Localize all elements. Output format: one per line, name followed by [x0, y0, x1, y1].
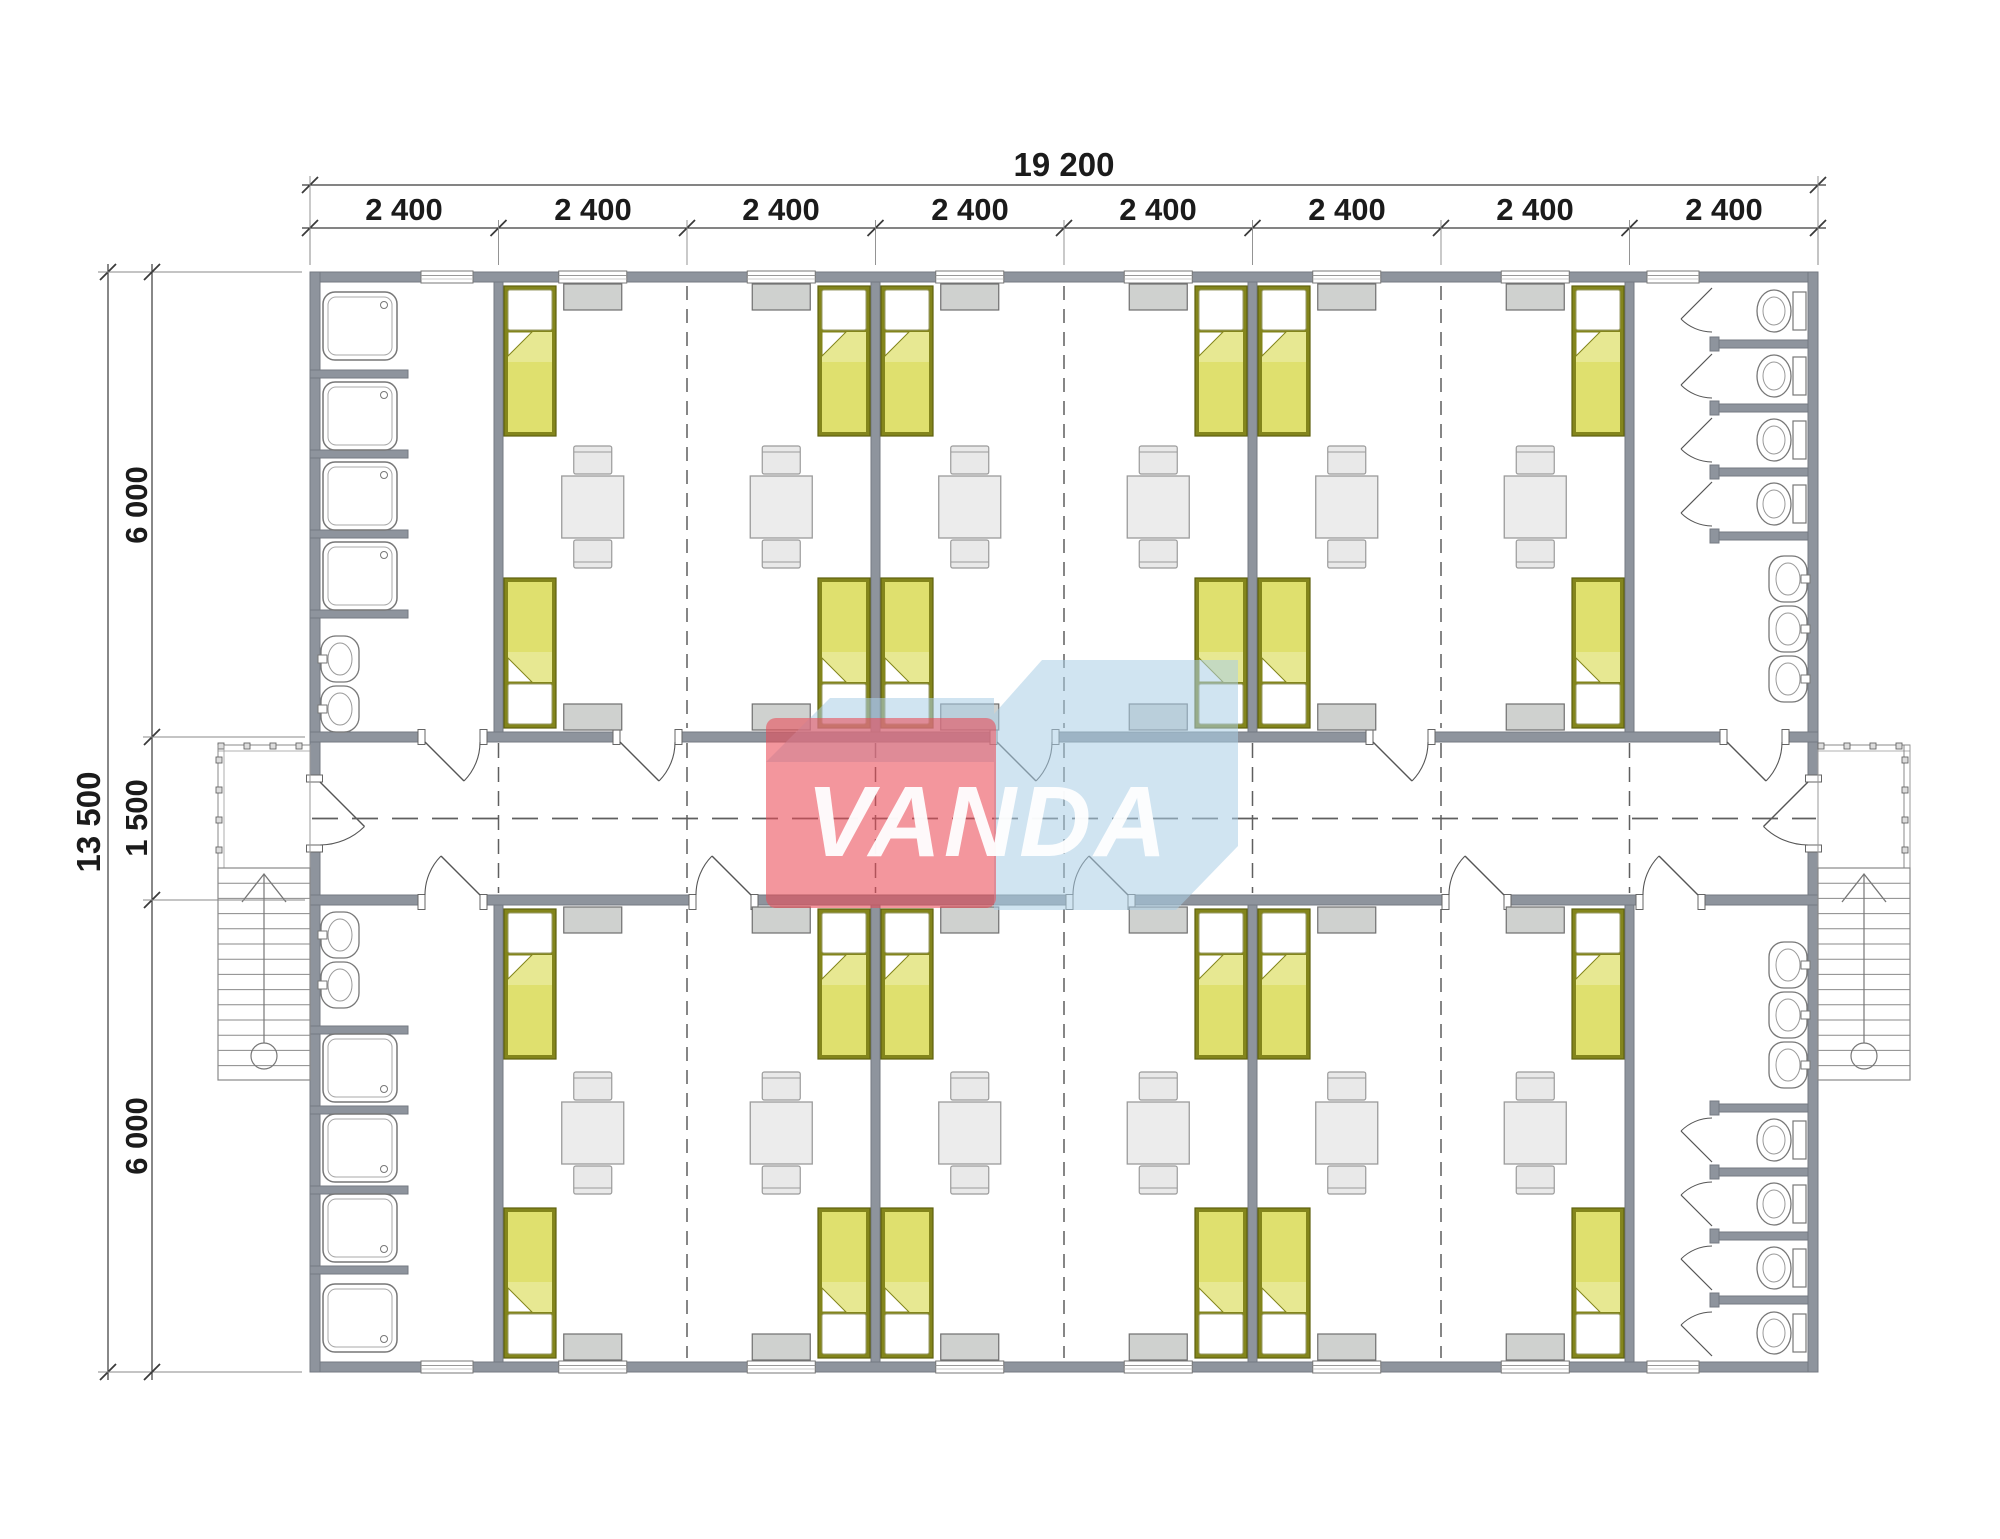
chair [951, 540, 989, 568]
sink-bowl [1776, 613, 1800, 645]
bed-pillow [1576, 913, 1620, 953]
table [939, 476, 1001, 538]
railing-post [216, 847, 222, 853]
landing [1818, 745, 1910, 868]
door-jamb [1782, 730, 1789, 745]
window [559, 271, 627, 283]
door-opening [425, 894, 480, 906]
toilet-bowl-inner [1763, 1190, 1785, 1218]
sink-faucet [1801, 575, 1810, 583]
wardrobe [1506, 704, 1564, 730]
sink-faucet [318, 655, 327, 663]
wall-room-divider [871, 905, 880, 1362]
wall-wc-stall [1714, 340, 1808, 348]
bed-pillow [822, 290, 866, 330]
chair [574, 1166, 612, 1194]
bed-pillow [1576, 684, 1620, 724]
table [1504, 1102, 1566, 1164]
chair [1139, 1166, 1177, 1194]
chair [762, 1166, 800, 1194]
shower-drain [381, 472, 388, 479]
wall-shower-stall [310, 370, 408, 378]
wall-wc-jamb [1710, 1101, 1719, 1115]
wall-room-divider [494, 282, 503, 732]
wall-wc-stall [1714, 1104, 1808, 1112]
wall-room-divider [1625, 282, 1634, 732]
bed-pillow [1262, 290, 1306, 330]
door-jamb [689, 895, 696, 910]
railing-post [1896, 743, 1902, 749]
shower-drain [381, 302, 388, 309]
window [747, 1361, 815, 1373]
toilet-bowl-inner [1763, 1254, 1785, 1282]
table [562, 476, 624, 538]
bed-pillow [508, 290, 552, 330]
toilet-tank [1793, 1314, 1806, 1352]
wardrobe [564, 284, 622, 310]
sink-faucet [1801, 625, 1810, 633]
door-jamb [1698, 895, 1705, 910]
door-jamb [1806, 845, 1822, 852]
bed-pillow [1199, 290, 1243, 330]
bed-pillow [1199, 1314, 1243, 1354]
wall-wc-jamb [1710, 401, 1719, 415]
bed-pillow [1262, 684, 1306, 724]
window [936, 271, 1004, 283]
railing-post [1902, 787, 1908, 793]
door-jamb [307, 845, 323, 852]
dim-module-3: 2 400 [742, 192, 820, 227]
table [1127, 1102, 1189, 1164]
railing-post [1902, 757, 1908, 763]
bed-pillow [1576, 1314, 1620, 1354]
shower-drain [381, 1246, 388, 1253]
chair [574, 540, 612, 568]
bed-pillow [508, 1314, 552, 1354]
door-jamb [307, 775, 323, 782]
door-jamb [675, 730, 682, 745]
door-opening [1643, 894, 1698, 906]
sink-bowl [1776, 949, 1800, 981]
wall-wc-jamb [1710, 1165, 1719, 1179]
wardrobe [1506, 907, 1564, 933]
railing-post [1844, 743, 1850, 749]
sink-bowl [328, 919, 352, 951]
table [1127, 476, 1189, 538]
dim-module-1: 2 400 [365, 192, 443, 227]
railing-post [216, 817, 222, 823]
drawing-canvas: VANDA 19 200 2 400 2 400 2 400 2 400 2 4… [0, 0, 2000, 1539]
wall-wc-stall [1714, 1232, 1808, 1240]
wardrobe [1129, 284, 1187, 310]
sink-bowl [328, 643, 352, 675]
sink-bowl [1776, 999, 1800, 1031]
dim-total-depth: 13 500 [70, 772, 107, 873]
chair [1328, 540, 1366, 568]
dim-module-5: 2 400 [1119, 192, 1197, 227]
toilet-bowl-inner [1763, 362, 1785, 390]
chair [951, 446, 989, 474]
railing-post [296, 743, 302, 749]
wall-top [310, 272, 1818, 282]
window [559, 1361, 627, 1373]
chair [1516, 446, 1554, 474]
wall-shower-stall [310, 610, 408, 618]
chair [574, 1072, 612, 1100]
sink-bowl [1776, 1049, 1800, 1081]
window [1501, 1361, 1569, 1373]
wardrobe [564, 907, 622, 933]
door-jamb [1806, 775, 1822, 782]
toilet-tank [1793, 1121, 1806, 1159]
chair [762, 1072, 800, 1100]
window [421, 1361, 473, 1373]
wardrobe [1318, 1334, 1376, 1360]
door-opening [696, 894, 751, 906]
wardrobe [564, 704, 622, 730]
toilet-tank [1793, 357, 1806, 395]
chair [762, 540, 800, 568]
window [1647, 1361, 1699, 1373]
railing-post [270, 743, 276, 749]
window [1124, 1361, 1192, 1373]
bed-pillow [1576, 290, 1620, 330]
wardrobe [752, 284, 810, 310]
toilet-tank [1793, 292, 1806, 330]
wall-wc-stall [1714, 532, 1808, 540]
table [939, 1102, 1001, 1164]
wall-room-divider [1248, 282, 1257, 732]
chair [1328, 1072, 1366, 1100]
chair [574, 446, 612, 474]
wall-bottom [310, 1362, 1818, 1372]
chair [1516, 1072, 1554, 1100]
wardrobe [941, 284, 999, 310]
window [1124, 271, 1192, 283]
toilet-bowl-inner [1763, 1319, 1785, 1347]
railing-post [218, 743, 224, 749]
wardrobe [752, 1334, 810, 1360]
door-jamb [480, 895, 487, 910]
toilet-bowl-inner [1763, 426, 1785, 454]
shower-drain [381, 1166, 388, 1173]
toilet-tank [1793, 421, 1806, 459]
door-opening [1373, 731, 1428, 743]
table [562, 1102, 624, 1164]
wardrobe [941, 907, 999, 933]
door-jamb [418, 730, 425, 745]
railing-post [1870, 743, 1876, 749]
wardrobe [752, 907, 810, 933]
door-jamb [1720, 730, 1727, 745]
window [1501, 271, 1569, 283]
chair [1139, 540, 1177, 568]
railing-post [1902, 847, 1908, 853]
wall-wc-jamb [1710, 1229, 1719, 1243]
door-opening [309, 782, 321, 845]
dim-depth-seg-1: 6 000 [119, 466, 154, 544]
bed-pillow [508, 913, 552, 953]
sink-bowl [1776, 563, 1800, 595]
bed-pillow [508, 684, 552, 724]
floor-plan: VANDA 19 200 2 400 2 400 2 400 2 400 2 4… [0, 0, 2000, 1539]
sink-faucet [318, 705, 327, 713]
sink-bowl [328, 969, 352, 1001]
dim-module-8: 2 400 [1685, 192, 1763, 227]
door-jamb [1428, 730, 1435, 745]
dim-module-6: 2 400 [1308, 192, 1386, 227]
bed-pillow [1262, 913, 1306, 953]
toilet-bowl-inner [1763, 297, 1785, 325]
sink-faucet [1801, 675, 1810, 683]
dim-total-width: 19 200 [1014, 146, 1115, 183]
window [1313, 1361, 1381, 1373]
toilet-tank [1793, 1249, 1806, 1287]
chair [1516, 540, 1554, 568]
shower-drain [381, 1336, 388, 1343]
wall-room-divider [494, 905, 503, 1362]
door-opening [425, 731, 480, 743]
sink-bowl [328, 693, 352, 725]
chair [1139, 1072, 1177, 1100]
toilet-bowl-inner [1763, 1126, 1785, 1154]
wall-shower-stall [310, 1266, 408, 1274]
bed-pillow [822, 913, 866, 953]
railing-post [216, 757, 222, 763]
wall-shower-stall [310, 1186, 408, 1194]
window [421, 271, 473, 283]
sink-faucet [318, 981, 327, 989]
bed-pillow [885, 913, 929, 953]
bed-pillow [885, 1314, 929, 1354]
wall-wc-stall [1714, 1296, 1808, 1304]
table [750, 1102, 812, 1164]
wardrobe [1318, 284, 1376, 310]
bed-pillow [1262, 1314, 1306, 1354]
wardrobe [1129, 1334, 1187, 1360]
door-opening [620, 731, 675, 743]
wall-shower-stall [310, 450, 408, 458]
wall-wc-jamb [1710, 1293, 1719, 1307]
chair [1139, 446, 1177, 474]
dim-module-4: 2 400 [931, 192, 1009, 227]
dim-depth-seg-3: 6 000 [119, 1097, 154, 1175]
railing-post [1902, 817, 1908, 823]
toilet-tank [1793, 1185, 1806, 1223]
bed-pillow [822, 1314, 866, 1354]
door-jamb [1442, 895, 1449, 910]
wall-wc-stall [1714, 468, 1808, 476]
railing-post [244, 743, 250, 749]
chair [1328, 446, 1366, 474]
shower-drain [381, 392, 388, 399]
door-jamb [613, 730, 620, 745]
bed-pillow [1199, 913, 1243, 953]
chair [762, 446, 800, 474]
dim-module-7: 2 400 [1496, 192, 1574, 227]
wardrobe [1318, 907, 1376, 933]
chair [1516, 1166, 1554, 1194]
chair [951, 1072, 989, 1100]
wall-wc-jamb [1710, 337, 1719, 351]
wall-room-divider [1248, 905, 1257, 1362]
door-opening [1807, 782, 1819, 845]
wall-shower-stall [310, 530, 408, 538]
window [747, 271, 815, 283]
wardrobe [1129, 907, 1187, 933]
door-jamb [418, 895, 425, 910]
wall-wc-stall [1714, 1168, 1808, 1176]
door-opening [1449, 894, 1504, 906]
wall-wc-jamb [1710, 529, 1719, 543]
wardrobe [564, 1334, 622, 1360]
door-jamb [480, 730, 487, 745]
dim-module-2: 2 400 [554, 192, 632, 227]
wardrobe [941, 1334, 999, 1360]
dim-depth-seg-2: 1 500 [119, 779, 154, 857]
door-jamb [1366, 730, 1373, 745]
door-jamb [1636, 895, 1643, 910]
wall-shower-stall [310, 1026, 408, 1034]
wardrobe [1506, 1334, 1564, 1360]
sink-faucet [1801, 961, 1810, 969]
shower-drain [381, 552, 388, 559]
table [1316, 476, 1378, 538]
toilet-tank [1793, 485, 1806, 523]
sink-bowl [1776, 663, 1800, 695]
door-opening [1727, 731, 1782, 743]
wall-wc-stall [1714, 404, 1808, 412]
table [750, 476, 812, 538]
table [1316, 1102, 1378, 1164]
chair [1328, 1166, 1366, 1194]
window [1647, 271, 1699, 283]
wall-room-divider [871, 282, 880, 732]
bed-pillow [885, 290, 929, 330]
table [1504, 476, 1566, 538]
railing-post [1818, 743, 1824, 749]
sink-faucet [1801, 1061, 1810, 1069]
chair [951, 1166, 989, 1194]
sink-faucet [1801, 1011, 1810, 1019]
sink-faucet [318, 931, 327, 939]
railing-post [216, 787, 222, 793]
toilet-bowl-inner [1763, 490, 1785, 518]
watermark-text: VANDA [806, 766, 1169, 878]
wall-wc-jamb [1710, 465, 1719, 479]
wall-shower-stall [310, 1106, 408, 1114]
wardrobe [1506, 284, 1564, 310]
shower-drain [381, 1086, 388, 1093]
wall-room-divider [1625, 905, 1634, 1362]
window [1313, 271, 1381, 283]
landing [218, 745, 310, 868]
window [936, 1361, 1004, 1373]
wardrobe [1318, 704, 1376, 730]
